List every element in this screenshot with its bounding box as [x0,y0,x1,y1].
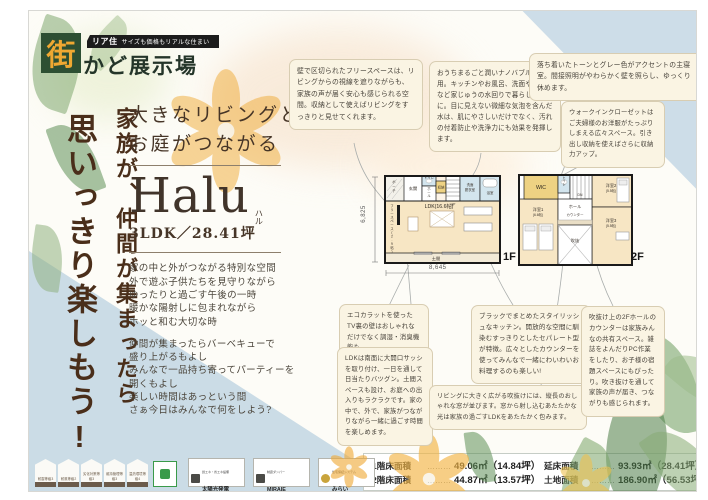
callout-master-bedroom: 落ち着いたトーンとグレー色がアクセントの主寝室。間接照明がやわらかく壁を照らし、… [529,53,697,101]
svg-text:カウンター: カウンター [567,212,585,217]
callout-kitchen: ブラックでまとめたスタイリッシュなキッチン。開放的な空間に馴染むすっきりとしたセ… [471,305,591,384]
logo-text: かど展示場 [83,50,198,80]
equipment-badge-solar: 創エネ・省エネ設備 太陽光発電 標準装備 [188,458,245,487]
certification-badges-row: 耐震等級3 耐風等級2 劣化対策等級3 維持管理等級3 温熱環境等級4 創エネ・… [35,453,375,487]
intro-text-line: 楽しい時間はあっという間 [129,391,309,404]
intro-block: 大きなリビングと お庭がつながる Halu ハル 3LDK／28.41坪 家の中… [129,101,309,418]
floor-label-2f: 2F [631,251,644,263]
svg-text:収納: 収納 [438,185,445,190]
plan-name-ruby: ハル [255,210,268,227]
intro-paragraph-1: 家の中と外がつながる特別な空間 外で遊ぶ子供たちを見守りながら ゆったりと過ごす… [129,262,309,328]
intro-text-line: さぁ今日はみんなで何をしよう? [129,404,309,417]
solar-panel-icon [191,474,200,483]
svg-text:浴室: 浴室 [487,190,494,195]
area-row-2f: 2階床面積 ……… 44.87㎡（13.57坪） [372,472,540,486]
green-certification-badge [153,461,177,487]
flyer-canvas: 街 リア住 サイズも価格もリアルな住まい かど展示場 家族が、仲間が集まったら … [28,10,697,492]
plan-name: Halu [129,171,250,221]
logo-ribbon: リア住 サイズも価格もリアルな住まい [87,35,219,48]
dimension-horizontal: 8,645 [429,265,447,271]
svg-text:LDK(16.6帖): LDK(16.6帖) [425,202,454,210]
performance-badge: 耐風等級2 [58,459,79,487]
svg-text:洋室3: 洋室3 [606,217,617,224]
floor-plan-1f: ポーチ 玄関 トイレ ホール 収納 UP 洗面 脱衣室 浴室 LDK(16.6帖… [384,175,501,264]
callout-ldk-south: LDKは南面に大開口サッシを取り付け、一日を通して日当たりバツグン。土間スペース… [337,347,433,446]
intro-text-line: ホッと和む大切な時 [129,316,309,329]
catch-copy-line2: お庭がつながる [129,130,309,159]
svg-text:ホール: ホール [569,204,582,209]
intro-text-line: 家の中と外がつながる特別な空間 [129,262,309,275]
intro-text-line: 外で遊ぶ子供たちを見守りながら [129,276,309,289]
svg-text:トイレ: トイレ [424,176,435,180]
intro-paragraph-2: 仲間が集まったらバーベキューで 盛り上がるもよし みんなで一品持ち寄ってパーティ… [129,338,309,418]
logo-machi-box: 街 [41,33,81,73]
svg-text:脱衣室: 脱衣室 [465,187,476,192]
svg-text:吹抜: 吹抜 [571,237,580,244]
catch-copy-line1: 大きなリビングと [129,101,309,130]
svg-text:(5.5帖): (5.5帖) [606,223,616,228]
divider-rule [129,252,281,253]
logo-machi-character: 街 [46,32,75,74]
green-badge-icon [160,469,170,479]
svg-text:(5.5帖): (5.5帖) [606,188,616,193]
divider-rule [129,165,281,166]
intro-text-line: 暖かな陽射しに包まれながら [129,302,309,315]
flyer-page: 街 リア住 サイズも価格もリアルな住まい かど展示場 家族が、仲間が集まったら … [0,0,708,500]
performance-badge: 維持管理等級3 [104,459,125,487]
damper-icon [256,474,265,483]
intro-text-line: 盛り上がるもよし [129,351,309,364]
area-row-1f: 1階床面積 ……… 49.06㎡（14.84坪） [372,458,540,472]
floor-label-1f: 1F [503,251,516,263]
plan-spec: 3LDK／28.41坪 [129,223,309,243]
ribbon-sub-text: サイズも価格もリアルな住まい [122,37,210,46]
ribbon-brand-text: リア住 [92,36,118,47]
dimension-vertical: 6,825 [361,205,367,223]
callout-void-windows: リビングに大きく広がる吹抜けには、縦長のおしゃれな窓が並びます。窓から射し込むあ… [429,385,587,430]
equipment-badge-warranty: 住宅保証システム みらい 標準装備 [318,458,375,487]
callout-free-space: 壁で区切られたフリースペースは、リビングからの視線を遮りながらも、家族の声が届く… [289,59,423,130]
performance-badge: 劣化対策等級3 [81,459,102,487]
svg-text:(6.6帖): (6.6帖) [533,212,543,217]
floor-plan-2f: WIC トイレ DN 洋室1 (6.6帖) ホール カウンター 吹抜 洋室2 (… [518,174,633,266]
intro-text-line: 開くもよし [129,378,309,391]
intro-text-line: みんなで一品持ち寄ってパーティーを [129,364,309,377]
medal-icon [321,474,330,483]
performance-badge: 温熱環境等級4 [127,459,148,487]
svg-text:洋室1: 洋室1 [533,206,544,213]
headline-vertical-line2: 思いっきり楽しもう! [57,113,102,491]
svg-text:WIC: WIC [536,185,546,191]
svg-text:洗面: 洗面 [467,182,474,187]
performance-badge: 耐震等級3 [35,459,56,487]
svg-text:洋室2: 洋室2 [606,182,617,189]
intro-text-line: ゆったりと過ごす午後の一時 [129,289,309,302]
svg-text:DN: DN [578,193,583,197]
callout-hall-counter: 吹抜け上の2Fホールのカウンターは家族みんなの共有スペース。雑誌をよんだりPC作… [581,306,665,417]
equipment-badge-damper: 制震ダンパー MIRAIE 標準装備 [253,458,310,487]
callout-walk-in-closet: ウォークインクローゼットはご夫婦様のお洋服がたっぷりしまえる広々スペース。引き出… [561,101,665,168]
intro-text-line: 仲間が集まったらバーベキューで [129,338,309,351]
svg-text:玄関: 玄関 [409,185,417,192]
svg-text:土間: 土間 [432,255,440,262]
